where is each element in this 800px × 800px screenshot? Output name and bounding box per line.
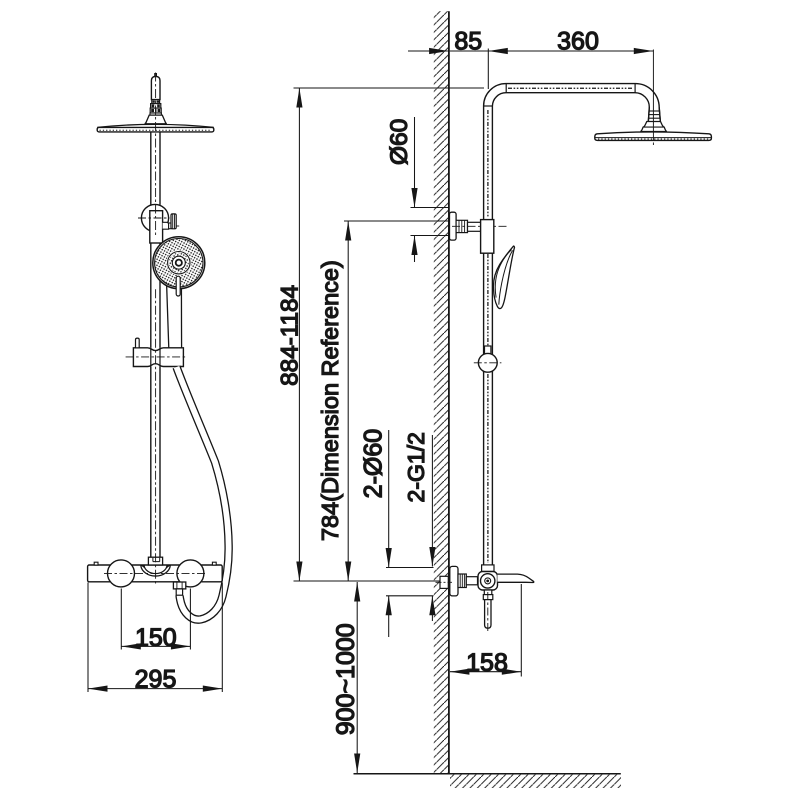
- svg-text:158: 158: [466, 649, 508, 677]
- svg-text:360: 360: [557, 28, 599, 56]
- svg-text:884-1184: 884-1184: [276, 285, 303, 386]
- svg-text:784(Dimension Reference): 784(Dimension Reference): [317, 260, 343, 541]
- svg-text:295: 295: [135, 666, 177, 694]
- svg-text:900~1000: 900~1000: [332, 623, 360, 735]
- svg-text:2-G1/2: 2-G1/2: [403, 432, 429, 502]
- svg-text:150: 150: [135, 624, 177, 652]
- svg-text:85: 85: [454, 28, 482, 56]
- svg-text:Ø60: Ø60: [386, 119, 413, 165]
- svg-text:2-Ø60: 2-Ø60: [360, 429, 388, 498]
